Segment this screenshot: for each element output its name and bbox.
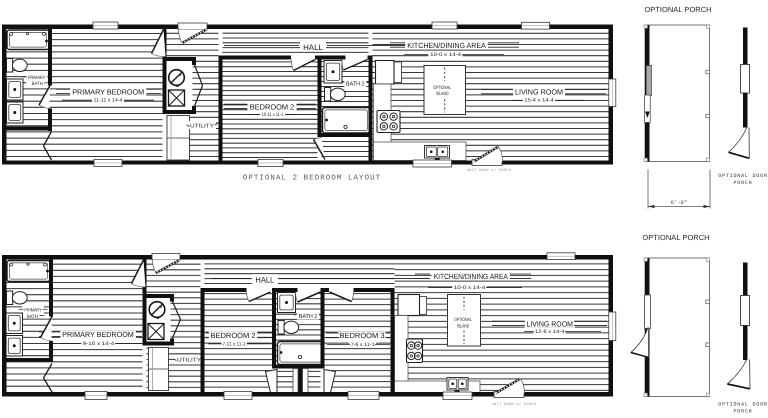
svg-text:10-11 x 11-1: 10-11 x 11-1 [262, 112, 284, 118]
svg-text:10-0 x 14-4: 10-0 x 14-4 [430, 52, 461, 58]
svg-text:PRIMARY: PRIMARY [28, 75, 46, 81]
svg-text:BATH 2: BATH 2 [346, 81, 365, 88]
svg-text:OPTIONAL PORCH: OPTIONAL PORCH [644, 5, 711, 14]
svg-text:OPTIONAL: OPTIONAL [454, 317, 472, 323]
svg-text:UTILITY: UTILITY [177, 357, 201, 363]
svg-text:HALL: HALL [303, 43, 323, 52]
svg-text:15-4 x 14-4: 15-4 x 14-4 [524, 98, 554, 104]
svg-text:7-11 x 11-1: 7-11 x 11-1 [223, 341, 246, 347]
svg-text:PORCH: PORCH [733, 180, 752, 186]
svg-text:OPTIONAL: OPTIONAL [433, 85, 451, 91]
svg-text:UNIT DOOR W/ PORCH: UNIT DOOR W/ PORCH [467, 168, 512, 173]
svg-text:BEDROOM 2: BEDROOM 2 [211, 331, 256, 340]
svg-text:9-10 x 14-4: 9-10 x 14-4 [83, 341, 115, 347]
svg-text:KITCHEN/DINING AREA: KITCHEN/DINING AREA [407, 41, 486, 50]
svg-text:OPTIONAL DOOR: OPTIONAL DOOR [718, 402, 767, 408]
svg-text:ISLAND: ISLAND [457, 323, 470, 329]
svg-text:OPTIONAL 2 BEDROOM LAYOUT: OPTIONAL 2 BEDROOM LAYOUT [243, 175, 381, 183]
svg-text:PORCH: PORCH [733, 409, 752, 415]
svg-text:PRIMARY: PRIMARY [24, 308, 42, 314]
svg-text:UTILITY: UTILITY [190, 123, 214, 129]
svg-text:KITCHEN/DINING AREA: KITCHEN/DINING AREA [434, 272, 508, 281]
svg-text:BATH: BATH [32, 81, 44, 87]
svg-text:BATH 2: BATH 2 [299, 313, 318, 320]
svg-text:10-0 x 14-4: 10-0 x 14-4 [454, 285, 486, 291]
svg-text:PRIMARY BEDROOM: PRIMARY BEDROOM [62, 330, 134, 339]
svg-text:7-6 x 11-1: 7-6 x 11-1 [351, 342, 375, 348]
svg-text:11-11 x 14-4: 11-11 x 14-4 [94, 98, 123, 104]
svg-text:LIVING ROOM: LIVING ROOM [526, 319, 573, 328]
svg-text:BATH: BATH [27, 314, 39, 320]
svg-text:6'-8": 6'-8" [671, 200, 688, 206]
svg-text:UNIT DOOR W/ PORCH: UNIT DOOR W/ PORCH [492, 402, 537, 407]
svg-text:OPTIONAL PORCH: OPTIONAL PORCH [642, 233, 709, 242]
svg-text:12-8 x 14-4: 12-8 x 14-4 [535, 329, 565, 335]
svg-text:PRIMARY BEDROOM: PRIMARY BEDROOM [72, 87, 144, 96]
svg-text:BEDROOM 3: BEDROOM 3 [340, 331, 385, 340]
svg-text:ISLAND: ISLAND [436, 91, 449, 97]
svg-text:LIVING ROOM: LIVING ROOM [515, 88, 563, 97]
svg-text:OPTIONAL DOOR: OPTIONAL DOOR [718, 173, 767, 179]
svg-text:HALL: HALL [255, 276, 274, 285]
svg-text:BEDROOM 2: BEDROOM 2 [250, 102, 295, 111]
